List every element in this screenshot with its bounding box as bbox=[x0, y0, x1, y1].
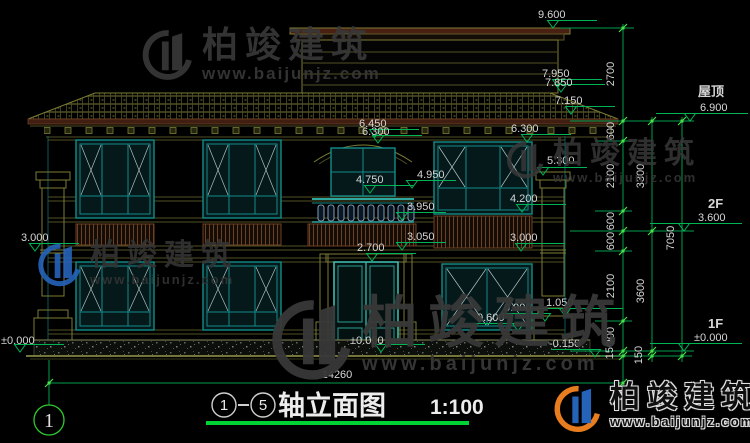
level-0900: 0.900 bbox=[504, 302, 532, 314]
dim-3300: 3300 bbox=[635, 164, 647, 188]
dim-150-a: 150 bbox=[604, 341, 616, 359]
plinth bbox=[34, 340, 590, 356]
level-1050: 1.050 bbox=[546, 297, 574, 309]
level-5300: 5.300 bbox=[547, 155, 575, 167]
dim-total-width: 14260 bbox=[322, 369, 353, 381]
dim-600-2: 600 bbox=[605, 212, 617, 230]
grid-axis-number: 1 bbox=[44, 410, 54, 432]
cad-viewport: 9.600 7.950 7.850 7.150 6.450 6.300 6.30… bbox=[0, 0, 750, 443]
elevation-drawing: 9.600 7.950 7.850 7.150 6.450 6.300 6.30… bbox=[0, 0, 750, 443]
dim-2100-2: 2100 bbox=[605, 274, 617, 298]
level-6300-center: 6.300 bbox=[362, 126, 390, 138]
roof-level: 6.900 bbox=[700, 102, 728, 114]
roof-label: 屋顶 bbox=[698, 84, 724, 99]
level-4750: 4.750 bbox=[356, 174, 384, 186]
level-7150: 7.150 bbox=[555, 95, 583, 107]
dim-600-1: 600 bbox=[605, 122, 617, 140]
dim-3600: 3600 bbox=[635, 279, 647, 303]
drawing-scale: 1:100 bbox=[430, 396, 484, 419]
level-0600: 0.600 bbox=[477, 312, 505, 324]
level-7850: 7.850 bbox=[545, 77, 573, 89]
f2-level: 3.600 bbox=[698, 212, 726, 224]
dim-7050: 7050 bbox=[665, 226, 677, 250]
drawing-title: 轴立面图 bbox=[278, 390, 386, 421]
level-minus-0150: -0.150 bbox=[549, 338, 580, 350]
title-axis-end: 5 bbox=[259, 397, 267, 414]
dim-150-b: 150 bbox=[633, 346, 645, 364]
title-axis-start: 1 bbox=[220, 397, 228, 414]
f1-label: 1F bbox=[708, 316, 723, 331]
level-3950: 3.950 bbox=[407, 201, 435, 213]
stair-bulkhead bbox=[290, 28, 570, 93]
dim-600-3: 600 bbox=[605, 232, 617, 250]
level-2700: 2.700 bbox=[357, 242, 385, 254]
level-3050: 3.050 bbox=[407, 231, 435, 243]
dim-2700: 2700 bbox=[605, 62, 617, 86]
level-3000-right: 3.000 bbox=[510, 232, 538, 244]
title-underline bbox=[206, 421, 469, 425]
level-0000-left: ±0.000 bbox=[1, 335, 35, 347]
level-6300-right: 6.300 bbox=[511, 123, 539, 135]
level-4950: 4.950 bbox=[417, 169, 445, 181]
f2-label: 2F bbox=[708, 196, 723, 211]
level-0000-door: ±0.000 bbox=[350, 335, 384, 347]
f1-level: ±0.000 bbox=[694, 332, 728, 344]
level-4200: 4.200 bbox=[510, 193, 538, 205]
level-3000-left: 3.000 bbox=[21, 232, 49, 244]
level-9600: 9.600 bbox=[538, 9, 566, 21]
dim-2100-1: 2100 bbox=[605, 164, 617, 188]
